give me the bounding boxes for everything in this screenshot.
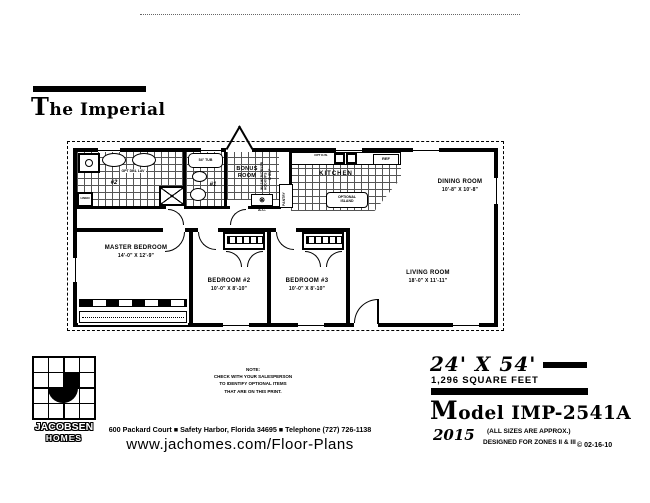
bedroom3-name: BEDROOM #3 bbox=[272, 278, 342, 286]
entry-door-leaf bbox=[238, 126, 253, 150]
window bbox=[453, 323, 479, 327]
logo-cell-filled bbox=[65, 373, 79, 387]
bonus-room-label: BONUS ROOM bbox=[230, 166, 264, 180]
logo-cell bbox=[80, 358, 94, 372]
wardrobe-closet bbox=[159, 186, 185, 206]
linen-label: LINEN bbox=[77, 197, 93, 201]
website-url: www.jachomes.com/Floor-Plans bbox=[90, 436, 390, 454]
model-rest: odel IMP-2541A bbox=[458, 403, 631, 424]
logo-cell bbox=[34, 373, 48, 387]
toilet bbox=[192, 171, 207, 182]
master-porch-strip bbox=[79, 311, 187, 323]
spec-short-bar bbox=[543, 362, 587, 368]
porch-dotted-line bbox=[82, 317, 184, 318]
window bbox=[73, 258, 77, 282]
master-bedroom-label: MASTER BEDROOM 14'-0" X 12'-9" bbox=[86, 245, 186, 259]
living-room-name: LIVING ROOM bbox=[376, 270, 480, 278]
optional-island-label: OPTIONAL ISLAND bbox=[334, 195, 360, 203]
wall-bed3-living bbox=[346, 232, 350, 323]
page-title-initial: T bbox=[31, 92, 49, 121]
dining-room-name: DINING ROOM bbox=[416, 179, 504, 187]
logo-cell bbox=[80, 404, 94, 418]
kitchen-sink-left bbox=[334, 153, 345, 164]
zones-note: DESIGNED FOR ZONES II & III bbox=[483, 440, 576, 447]
lavatory-2 bbox=[132, 153, 156, 167]
living-room-label: LIVING ROOM 18'-0" X 11'-11" bbox=[376, 270, 480, 284]
wall-bed2-bed3 bbox=[267, 232, 271, 323]
model-number: Model IMP-2541A bbox=[430, 396, 631, 425]
logo-grid-icon bbox=[32, 356, 96, 420]
logo-cell bbox=[65, 358, 79, 372]
logo-cell bbox=[49, 358, 63, 372]
entry-door-gap bbox=[226, 148, 252, 152]
bedroom2-label: BEDROOM #2 10'-0" X 8'-10" bbox=[194, 278, 264, 292]
logo-cell bbox=[34, 358, 48, 372]
entry-door-leaf bbox=[226, 126, 241, 150]
wall-master-bed2 bbox=[189, 232, 193, 323]
bed3-closet-rod bbox=[306, 236, 342, 244]
living-door-gap bbox=[354, 323, 378, 327]
model-initial: M bbox=[430, 396, 458, 425]
opt-dw-label: OPT D.W. bbox=[314, 154, 328, 158]
spec-divider-bar bbox=[431, 388, 588, 395]
bedroom3-dims: 10'-0" X 8'-10" bbox=[272, 286, 342, 293]
floor-plan-sheet: The Imperial OPT DBL LAV #2 LINEN bbox=[0, 0, 650, 503]
note-title: NOTE: bbox=[200, 366, 306, 373]
living-room-dims: 18'-0" X 11'-11" bbox=[376, 278, 480, 285]
note-block: NOTE: CHECK WITH YOUR SALESPERSON TO IDE… bbox=[200, 366, 306, 395]
bedroom2-dims: 10'-0" X 8'-10" bbox=[194, 286, 264, 293]
address-line: 600 Packard Court ■ Safety Harbor, Flori… bbox=[90, 426, 390, 433]
note-line: THAT ARE ON THIS PRINT. bbox=[200, 388, 306, 395]
bed2-closet-rod bbox=[227, 236, 263, 244]
model-year: 2015 bbox=[433, 426, 475, 444]
logo-cell bbox=[65, 404, 79, 418]
window bbox=[298, 323, 324, 327]
opt-dbl-lav-label: OPT DBL LAV bbox=[120, 169, 146, 173]
logo-cell bbox=[49, 404, 63, 418]
logo-cell bbox=[80, 373, 94, 387]
window bbox=[336, 148, 362, 152]
page-title-rest: he Imperial bbox=[49, 100, 165, 120]
bath1-sink bbox=[190, 188, 206, 201]
logo-cell bbox=[34, 404, 48, 418]
logo-cell bbox=[80, 389, 94, 403]
bedroom2-name: BEDROOM #2 bbox=[194, 278, 264, 286]
kitchen-label: KITCHEN bbox=[306, 171, 366, 179]
page-title: The Imperial bbox=[31, 92, 165, 121]
plan-dimensions: 24' X 54' bbox=[430, 352, 536, 376]
master-window-band bbox=[79, 299, 187, 307]
sizes-approx-note: (ALL SIZES ARE APPROX.) bbox=[487, 429, 571, 436]
floor-plan: OPT DBL LAV #2 LINEN 54" TUB #1 BONUS RO… bbox=[67, 141, 504, 331]
window bbox=[413, 148, 439, 152]
window bbox=[494, 178, 498, 204]
logo-cell bbox=[34, 389, 48, 403]
dining-room-label: DINING ROOM 10'-8" X 10'-8" bbox=[416, 179, 504, 193]
ac-unit: ⊗ bbox=[251, 194, 273, 206]
bath2-number-label: #2 bbox=[108, 180, 120, 187]
bath1-number-label: #1 bbox=[207, 182, 219, 189]
shower-drain-icon bbox=[85, 159, 93, 167]
ac-label: A.C. bbox=[255, 208, 269, 213]
bedroom3-label: BEDROOM #3 10'-0" X 8'-10" bbox=[272, 278, 342, 292]
lavatory-1 bbox=[102, 153, 126, 167]
wall-bath1-bonus bbox=[224, 152, 227, 207]
ref-label: REF bbox=[373, 157, 399, 162]
master-bedroom-dims: 14'-0" X 12'-9" bbox=[86, 253, 186, 260]
kitchen-sink-right bbox=[346, 153, 357, 164]
note-line: CHECK WITH YOUR SALESPERSON bbox=[200, 373, 306, 380]
square-feet: 1,296 SQUARE FEET bbox=[431, 376, 539, 386]
pantry-label: PANTRY bbox=[283, 187, 290, 206]
dining-room-dims: 10'-8" X 10'-8" bbox=[416, 187, 504, 194]
shelf-label: SHELF bbox=[269, 158, 276, 180]
tub-label: 54" TUB bbox=[188, 158, 223, 162]
logo-cell bbox=[49, 373, 63, 387]
master-bedroom-name: MASTER BEDROOM bbox=[86, 245, 186, 253]
note-line: TO IDENTIFY OPTIONAL ITEMS bbox=[200, 380, 306, 387]
window bbox=[98, 148, 120, 152]
top-dotted-line bbox=[140, 14, 520, 15]
window bbox=[223, 323, 249, 327]
copyright-date: © 02-16-10 bbox=[577, 442, 612, 449]
living-door-leaf bbox=[377, 299, 379, 324]
window bbox=[201, 148, 221, 152]
